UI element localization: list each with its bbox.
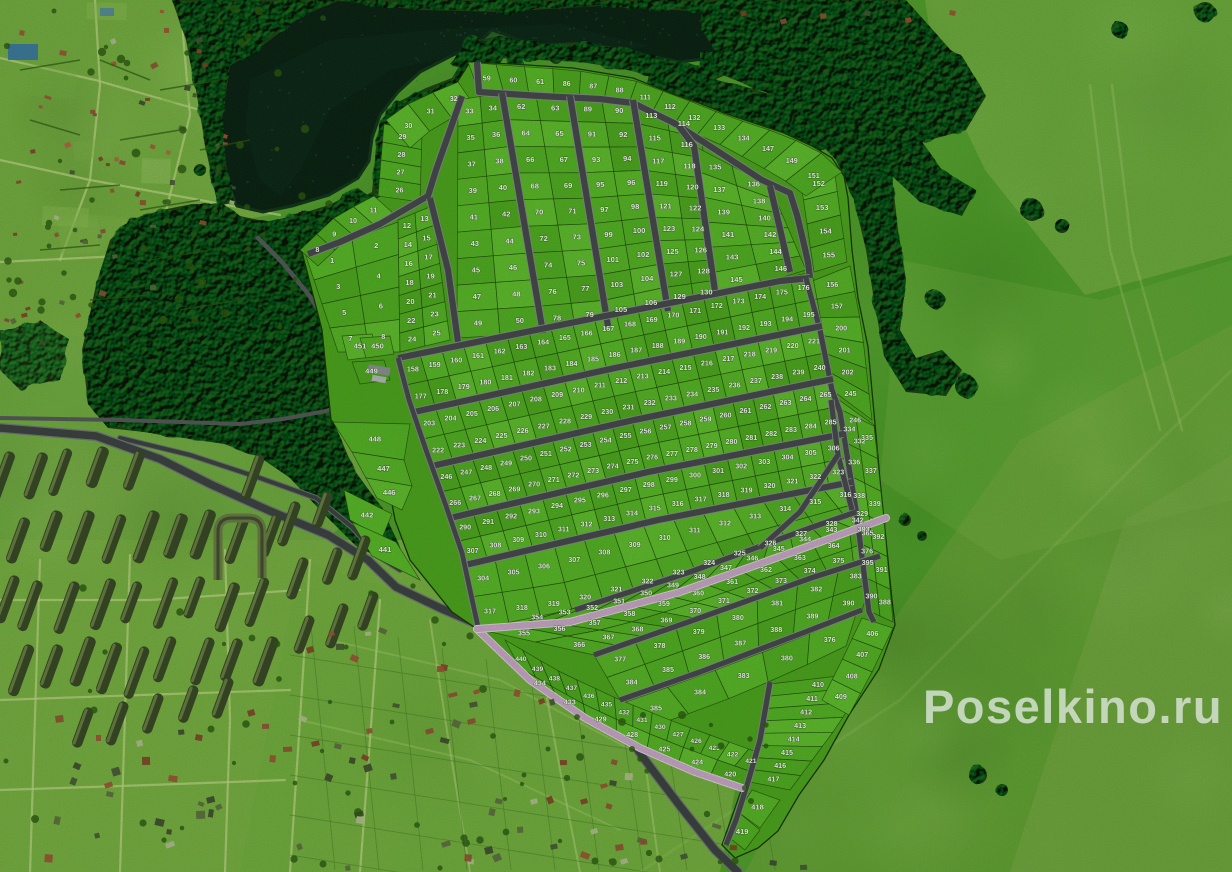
svg-text:Poselkino.ru: Poselkino.ru [923, 680, 1223, 733]
